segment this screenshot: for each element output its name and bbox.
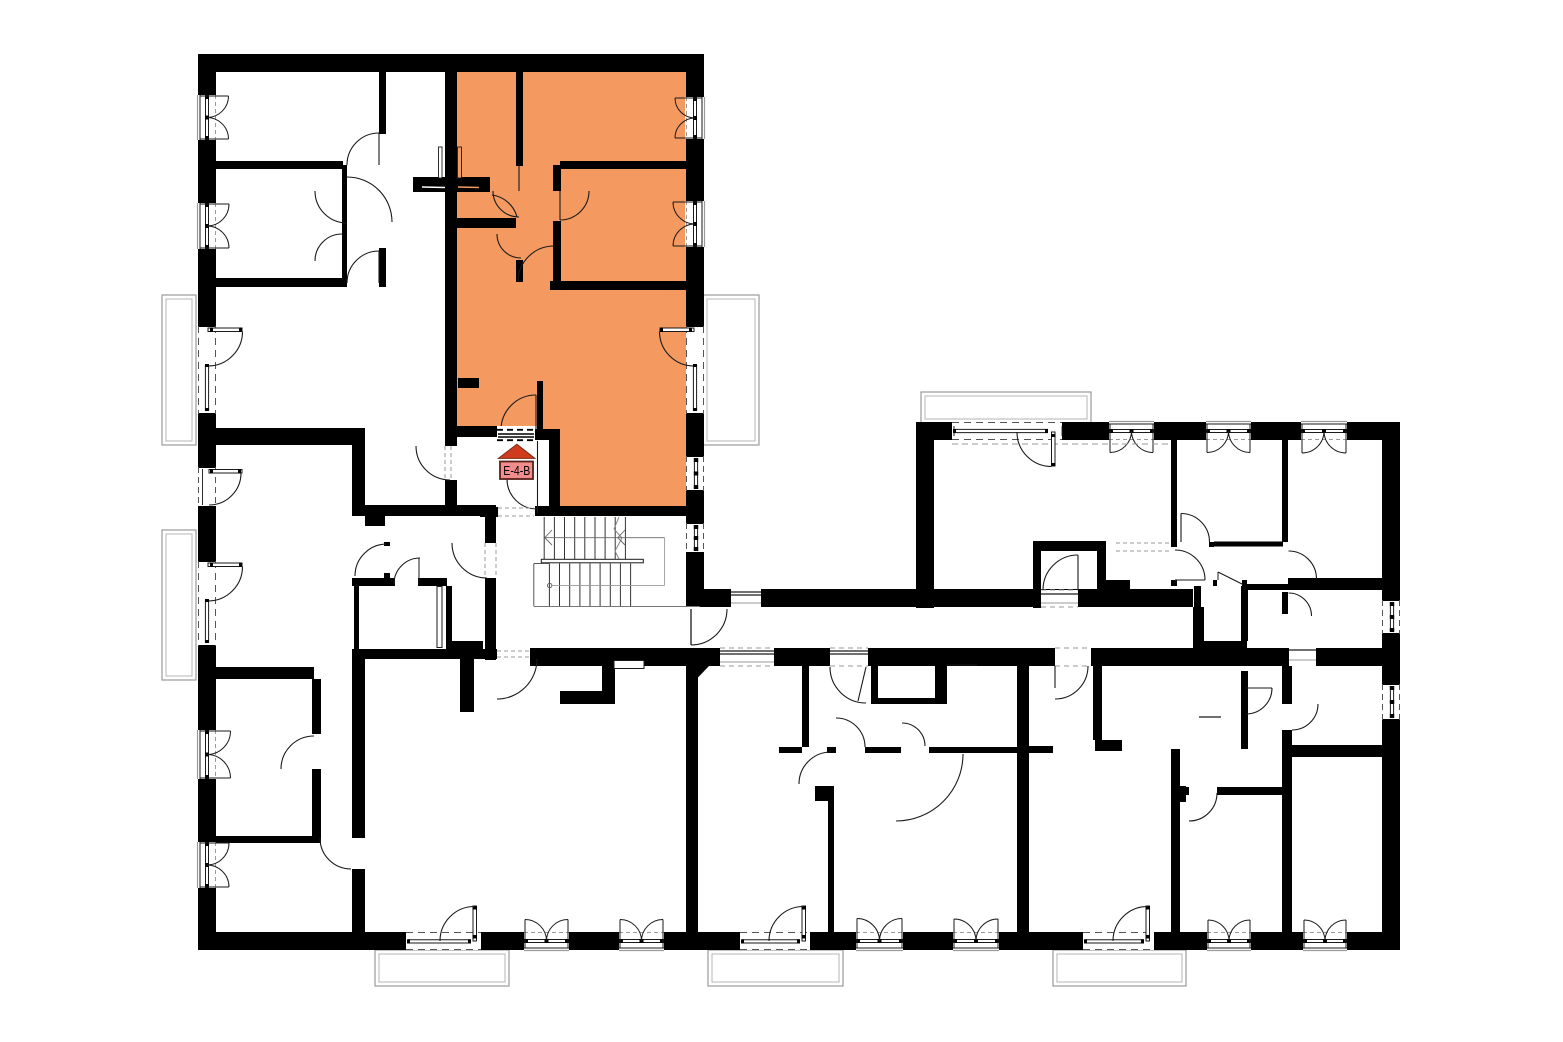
svg-text:E-4-B: E-4-B [503,463,530,478]
